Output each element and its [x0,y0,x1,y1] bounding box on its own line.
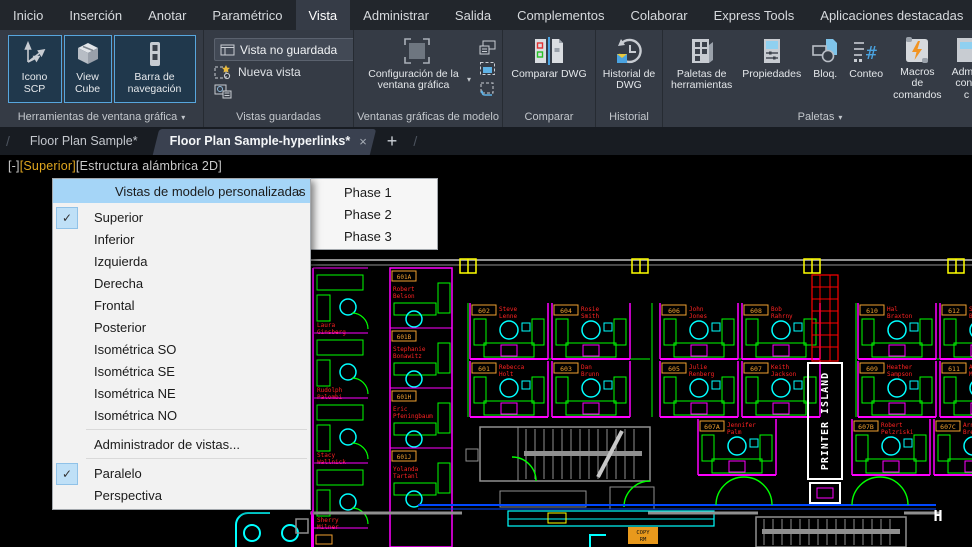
command-macros-label: Macros de comandos [893,67,941,102]
svg-text:Bonawitz: Bonawitz [393,353,422,360]
svg-text:Palm: Palm [727,429,742,436]
menu-item-custom-model-views[interactable]: Vistas de modelo personalizadas › [53,179,310,203]
ribbon-tab-bar: InicioInserciónAnotarParamétricoVistaAdm… [0,0,972,30]
command-macros-button[interactable]: Macros de comandos [890,34,944,104]
svg-text:Lenne: Lenne [499,313,517,320]
viewport-visual-style-control[interactable]: [Estructura alámbrica 2D] [76,159,222,173]
ribbon-tab-anotar[interactable]: Anotar [135,0,199,30]
svg-text:Jones: Jones [689,313,707,320]
new-view-icon [214,64,232,80]
chevron-down-icon: ▾ [181,113,185,122]
new-view-label: Nueva vista [238,65,301,79]
cubicle-pod: 612SusanBrehe [940,303,972,359]
blocks-button[interactable]: Bloq. [808,34,842,104]
left-rooms: LauraGinsbergRudolphPalombiStacyWallnick… [313,268,368,547]
ucs-axes-icon [22,39,48,69]
svg-text:Breen: Breen [963,429,972,436]
restore-viewport-button[interactable] [478,82,496,98]
new-view-button[interactable]: Nueva vista [214,64,301,80]
submenu-item-phase-3[interactable]: Phase 3 [309,225,437,247]
menu-item-paralelo[interactable]: ✓Paralelo [53,462,310,484]
menu-item-isom-trica-se[interactable]: Isométrica SE [53,360,310,382]
ribbon-tab-administrar[interactable]: Administrar [350,0,442,30]
svg-text:COPY: COPY [636,530,650,536]
svg-text:610: 610 [866,307,878,315]
menu-item-izquierda[interactable]: Izquierda [53,250,310,272]
svg-text:607C: 607C [940,423,956,431]
sheet-set-manager-button[interactable]: Admin conj. c [949,34,972,104]
menu-item-administrador-de-vistas[interactable]: Administrador de vistas... [53,433,310,455]
panel-model-viewports: Configuración de la ventana gráfica▾ Ven… [354,30,503,127]
svg-text:John: John [689,306,704,313]
properties-button[interactable]: Propiedades [739,34,804,104]
panel-caption-model-viewports: Ventanas gráficas de modelo [354,107,502,127]
svg-text:606: 606 [668,307,680,315]
svg-text:Steve: Steve [499,306,517,313]
menu-separator [86,429,307,430]
tool-palettes-button[interactable]: Paletas de herramientas [668,34,735,104]
menu-item-perspectiva[interactable]: Perspectiva [53,484,310,506]
count-icon: # [852,36,880,66]
viewport-view-control[interactable]: [Superior] [20,159,76,173]
cubicle-pod: 604RosieSmith [552,303,630,359]
ribbon-tab-vista[interactable]: Vista [296,0,351,30]
panel-caption-compare: Comparar [503,107,595,127]
svg-text:605: 605 [668,365,680,373]
viewport-config-button[interactable]: Configuración de la ventana gráfica▾ [360,34,474,104]
file-tab-bar: /Floor Plan Sample*Floor Plan Sample-hyp… [0,127,972,156]
viewcube-button[interactable]: View Cube [64,35,112,103]
svg-text:604: 604 [560,307,572,315]
ribbon-tab-salida[interactable]: Salida [442,0,504,30]
file-tab-floor-plan-sample-hyperlinks[interactable]: Floor Plan Sample-hyperlinks*× [152,127,377,155]
compare-dwg-label: Comparar DWG [511,69,586,81]
svg-text:609: 609 [866,365,878,373]
submenu-arrow-icon: › [298,184,302,199]
checkmark-icon: ✓ [56,207,78,229]
svg-text:Keith: Keith [771,364,789,371]
checkmark-icon: ✓ [56,463,78,485]
ribbon-tab-colaborar[interactable]: Colaborar [618,0,701,30]
cubicle-pod: 606JohnJones [660,303,738,359]
svg-text:Tartanl: Tartanl [393,473,419,480]
panel-caption-history: Historial [596,107,662,127]
svg-text:603: 603 [560,365,572,373]
viewport-config-label: Configuración de la ventana gráfica [363,69,464,93]
tab-separator: / [0,127,16,155]
svg-text:Yolanda: Yolanda [393,466,419,473]
close-tab-icon[interactable]: × [359,134,367,149]
svg-text:Renberg: Renberg [689,371,715,378]
svg-text:Eric: Eric [393,406,408,413]
svg-text:612: 612 [948,307,960,315]
dwg-history-label: Historial de DWG [602,69,656,93]
view-manager-icon-button[interactable] [214,83,232,99]
svg-text:607: 607 [750,365,762,373]
svg-text:Holt: Holt [499,371,514,378]
bottom-corridor: H [310,477,943,525]
blocks-label: Bloq. [813,69,837,81]
view-list-icon [214,83,232,99]
view-context-menu: Vistas de modelo personalizadas › ✓Super… [52,178,311,510]
menu-item-posterior[interactable]: Posterior [53,316,310,338]
utility-shaft [812,275,838,361]
viewport-config-icon [402,36,432,66]
tool-palettes-label: Paletas de herramientas [671,69,732,93]
dwg-history-icon [614,36,644,66]
dwg-history-button[interactable]: Historial de DWG [599,34,659,104]
svg-text:#: # [866,43,877,64]
tool-palettes-icon [689,36,715,66]
svg-text:Rahrny: Rahrny [771,313,793,320]
ribbon-tab-aplicaciones-destacadas[interactable]: Aplicaciones destacadas [807,0,972,30]
view-combo[interactable]: Vista no guardada ▾ [214,38,354,61]
cubicle-pod: 610HalBraxton [858,303,936,359]
svg-text:601A: 601A [397,274,412,281]
svg-text:Arnold: Arnold [963,422,972,429]
ribbon-tab-param-trico[interactable]: Paramétrico [199,0,295,30]
compare-dwg-icon [533,36,565,66]
blocks-icon [811,36,839,66]
viewport-mini-buttons [478,40,496,98]
cubicle-pod: 603DanBrunn [552,361,630,417]
svg-text:Robert: Robert [881,422,903,429]
ribbon-tabs: InicioInserciónAnotarParamétricoVistaAdm… [0,0,972,30]
svg-text:Rudolph: Rudolph [317,387,343,394]
svg-text:601B: 601B [397,334,412,341]
cubicle-pod: 605JulieRenberg [660,361,738,417]
svg-text:Bob: Bob [771,306,782,313]
menu-item-isom-trica-so[interactable]: Isométrica SO [53,338,310,360]
staircase-center [466,427,650,481]
svg-text:601J: 601J [397,454,411,461]
cubicle-pod: 608BobRahrny [742,303,820,359]
svg-text:Rebecca: Rebecca [499,364,525,371]
sheet-set-icon [953,36,972,64]
svg-text:PRINTER ISLAND: PRINTER ISLAND [820,372,831,470]
svg-text:Jennifer: Jennifer [727,422,756,429]
menu-item-derecha[interactable]: Derecha [53,272,310,294]
count-label: Conteo [849,69,883,81]
svg-text:Sherry: Sherry [317,517,339,524]
svg-text:608: 608 [750,307,762,315]
svg-text:Stephanie: Stephanie [393,346,426,353]
panel-viewport-tools: Icono SCP View Cube [0,30,204,127]
join-viewports-button[interactable] [478,61,496,77]
navbar-button[interactable]: Barra de navegación [114,35,196,103]
svg-text:Brunn: Brunn [581,371,599,378]
chevron-down-icon: ▾ [838,113,842,122]
panel-caption-palettes[interactable]: Paletas▾ [663,107,972,127]
navigation-bar-icon [142,39,168,69]
chevron-down-icon: ▾ [467,76,471,85]
ribbon-tab-inicio[interactable]: Inicio [0,0,56,30]
svg-text:Heather: Heather [887,364,913,371]
ucs-icon-button[interactable]: Icono SCP [8,35,62,103]
panel-compare: Comparar DWG Comparar [503,30,596,127]
viewport-controls: [-][Superior][Estructura alámbrica 2D] [8,159,222,173]
sheet-set-label: Admin conj. c [952,67,972,102]
file-tab-floor-plan-sample[interactable]: Floor Plan Sample* [16,127,152,155]
command-macros-icon [904,36,930,64]
viewport-icon [220,44,235,56]
properties-label: Propiedades [742,69,801,81]
menu-item-inferior[interactable]: Inferior [53,228,310,250]
ribbon-tab-inserci-n[interactable]: Inserción [56,0,135,30]
cubicle-pod: 601RebeccaHolt [470,361,548,417]
svg-text:Dan: Dan [581,364,592,371]
svg-text:602: 602 [478,307,490,315]
submenu-item-phase-1[interactable]: Phase 1 [309,181,437,203]
staircase-bottom-right [756,517,906,547]
cubicle-pod: 609HeatherSampson [858,361,936,417]
count-button[interactable]: # Conteo [846,34,886,104]
svg-text:Julie: Julie [689,364,707,371]
svg-text:607A: 607A [704,423,720,431]
viewcube-button-label: View Cube [68,71,108,95]
svg-text:601: 601 [478,365,490,373]
svg-text:Sampson: Sampson [887,371,913,378]
svg-text:607B: 607B [858,423,874,431]
panel-history: Historial de DWG Historial [596,30,663,127]
panel-named-views: Vista no guardada ▾ Nueva vista Vistas g… [204,30,354,127]
svg-text:Belson: Belson [393,293,415,300]
menu-item-frontal[interactable]: Frontal [53,294,310,316]
svg-text:Rosie: Rosie [581,306,599,313]
menu-item-isom-trica-no[interactable]: Isométrica NO [53,404,310,426]
svg-text:Laura: Laura [317,322,335,329]
ribbon: Icono SCP View Cube [0,30,972,127]
panel-caption-named-views: Vistas guardadas [204,107,353,127]
printer-island: PRINTER ISLAND [808,363,842,503]
menu-separator [86,458,307,459]
viewcube-icon [75,39,101,69]
ribbon-tab-express-tools[interactable]: Express Tools [701,0,808,30]
cubicle-pod: 607BRobertPelzriski [852,419,930,475]
named-viewports-button[interactable] [478,40,496,56]
panel-caption-viewport-tools[interactable]: Herramientas de ventana gráfica▾ [0,107,203,127]
new-tab-button[interactable]: + [377,127,408,155]
navbar-button-label: Barra de navegación [118,71,192,95]
cubicle-pod: 602SteveLenne [470,303,548,359]
svg-text:Pfeningbaum: Pfeningbaum [393,413,433,420]
view-combo-value: Vista no guardada [240,43,337,57]
svg-text:Hal: Hal [887,306,898,313]
cubicle-pod: 611ArtMuwwwld [940,361,972,417]
cubicle-pod: 607CArnoldBreen [934,419,972,475]
submenu-item-phase-2[interactable]: Phase 2 [309,203,437,225]
svg-text:RM: RM [640,537,647,543]
svg-text:Smith: Smith [581,313,599,320]
menu-item-superior[interactable]: ✓Superior [53,206,310,228]
viewport-minimize-control[interactable]: [-] [8,159,20,173]
svg-text:Stacy: Stacy [317,452,335,459]
compare-dwg-button[interactable]: Comparar DWG [507,34,591,104]
svg-text:601H: 601H [397,394,412,401]
ucs-button-label: Icono SCP [12,71,58,95]
cubicle-pod: 607AJenniferPalm [698,419,776,475]
properties-icon [761,36,783,66]
menu-item-isom-trica-ne[interactable]: Isométrica NE [53,382,310,404]
custom-views-submenu: Phase 1Phase 2Phase 3 [308,178,438,250]
svg-text:Jackson: Jackson [771,371,797,378]
svg-text:H: H [933,507,942,525]
panel-palettes: Paletas de herramientas Propiedades [663,30,972,127]
svg-text:Robert: Robert [393,286,415,293]
tab-separator: / [407,127,423,155]
svg-text:611: 611 [948,365,960,373]
svg-text:Pelzriski: Pelzriski [881,429,914,436]
ribbon-tab-complementos[interactable]: Complementos [504,0,617,30]
svg-text:Braxton: Braxton [887,313,913,320]
